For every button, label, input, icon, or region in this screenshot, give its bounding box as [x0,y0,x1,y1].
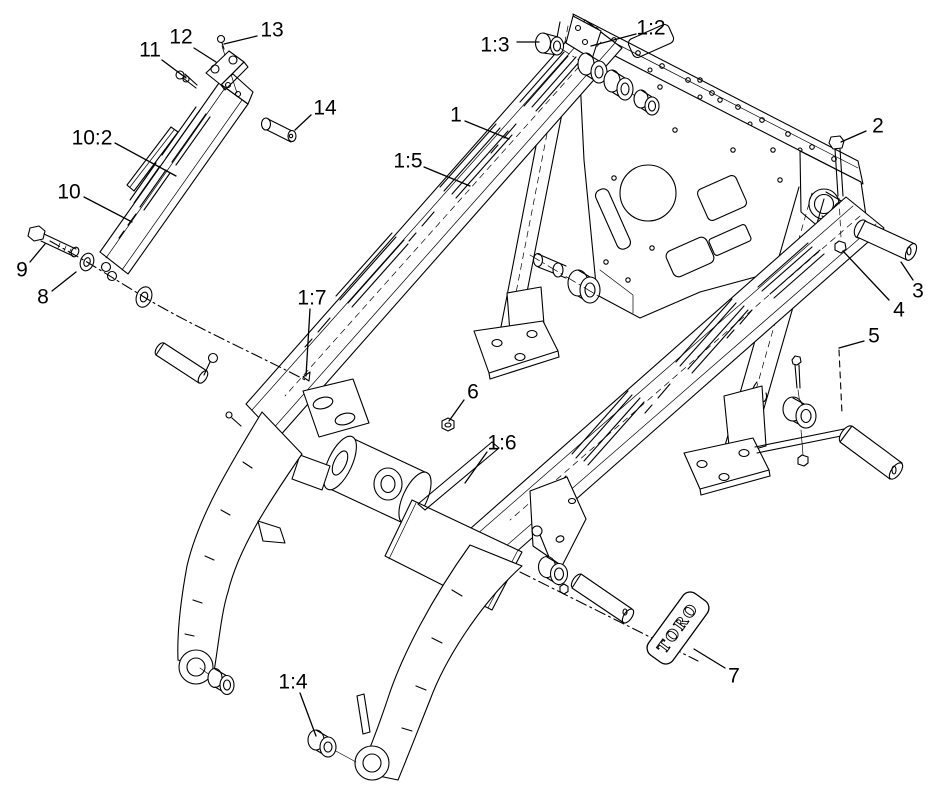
loader-beam-left [246,16,622,438]
callout-1-4: 1:4 [278,671,316,737]
part-number-label: 11 [139,39,161,62]
leader-line [162,60,186,78]
callout-13: 13 [224,19,284,45]
bolt-2-head [829,136,844,149]
leader-line [839,341,864,348]
callout-10: 10 [57,181,132,223]
part-number-label: 1:7 [297,287,326,310]
callout-3: 3 [901,262,924,303]
part-number-label: 10 [57,181,80,204]
hex-nut-5 [798,455,808,466]
callout-14: 14 [295,97,337,131]
leader-line [841,131,866,142]
part-number-label: 1:5 [393,150,422,173]
part-number-label: 13 [260,19,283,42]
part-number-label: 1:6 [487,432,516,455]
callout-7: 7 [694,649,740,688]
part-number-label: 4 [893,299,905,322]
callout-5: 5 [839,325,880,349]
parts-diagram-page: TORO 1312111410:210981:31:2121:53451:761… [0,0,938,791]
leader-line [194,48,216,62]
part-number-label: 10:2 [72,127,113,150]
callout-9: 9 [16,244,45,282]
leader-line [30,244,45,262]
part-number-label: 1 [450,104,462,127]
callout-6: 6 [449,381,479,422]
part-number-label: 2 [872,115,884,138]
bolt-head [28,226,45,241]
sub-arm-assembly [28,36,296,310]
part-number-label: 1:2 [636,17,665,40]
part-number-label: 8 [37,286,49,309]
part-number-label: 5 [868,325,880,348]
bolt-5-head [792,356,801,365]
part-number-label: 6 [467,381,479,404]
callout-2: 2 [841,115,884,143]
leader-line [224,36,257,44]
callout-1-3: 1:3 [480,34,539,57]
callout-4: 4 [843,251,905,322]
callout-1-6: 1:6 [465,432,517,484]
part-number-label: 14 [313,97,337,120]
leader-line [843,251,889,300]
small-pin [218,36,225,43]
brand-plate: TORO [644,588,713,667]
part-number-label: 12 [169,26,192,49]
leader-line [901,262,913,280]
loader-arm-right-front [308,545,522,780]
part-number-label: 9 [16,259,28,282]
callout-8: 8 [37,272,76,309]
parts-diagram-canvas: TORO 1312111410:210981:31:2121:53451:761… [0,0,938,791]
leader-line [295,115,311,130]
flange-nut-6 [442,418,454,431]
leader-line [52,272,76,291]
leader-line [694,649,725,668]
part-number-label: 7 [728,665,740,688]
leader-line [449,400,464,421]
callout-12: 12 [169,26,216,63]
part-number-label: 1:3 [480,34,509,57]
leader-line [84,197,132,222]
loader-arm-left-front [178,412,302,695]
handle-pin [153,341,241,426]
leader-line [465,452,487,483]
latch-bracket-assembly [530,477,636,625]
bushing-1-3 [536,33,551,53]
sub-arm-channel [100,83,248,274]
part-number-label: 1:4 [278,671,308,694]
part-number-label: 3 [912,280,924,303]
leader-line [300,693,316,736]
